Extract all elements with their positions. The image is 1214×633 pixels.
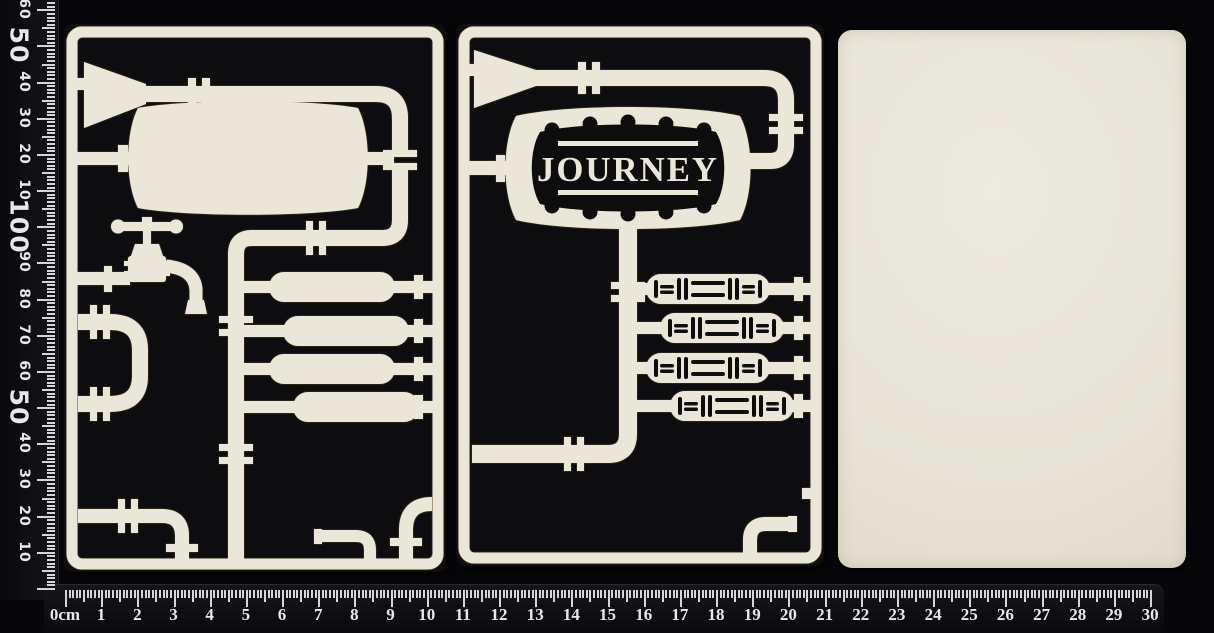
journey-text: JOURNEY: [537, 150, 719, 189]
barrel-plaques: [635, 274, 812, 421]
chipboard-sprue-pipes-blank: [64, 24, 446, 572]
sprue-left-cutouts: [72, 32, 438, 564]
banner-down-pipe: [472, 224, 645, 471]
faucet-tap: [76, 217, 207, 314]
faucet-spout: [166, 266, 196, 300]
bottom-elbow-pipes: [78, 499, 432, 560]
blank-barrel-plaque: [76, 101, 394, 215]
horizontal-ruler-face: [44, 584, 1164, 633]
vertical-ruler-face: [0, 0, 59, 600]
u-bend-pipe: [78, 305, 140, 421]
blank-pill-plaques: [242, 272, 434, 422]
pipe-funnel: [474, 50, 536, 108]
bottom-elbow-pipe: [750, 488, 814, 558]
sprue-journey-cutouts: JOURNEY: [464, 32, 816, 558]
blank-chipboard-panel: [838, 30, 1186, 568]
chipboard-sprue-journey: JOURNEY: [456, 24, 824, 566]
journey-banner: JOURNEY: [468, 107, 751, 229]
